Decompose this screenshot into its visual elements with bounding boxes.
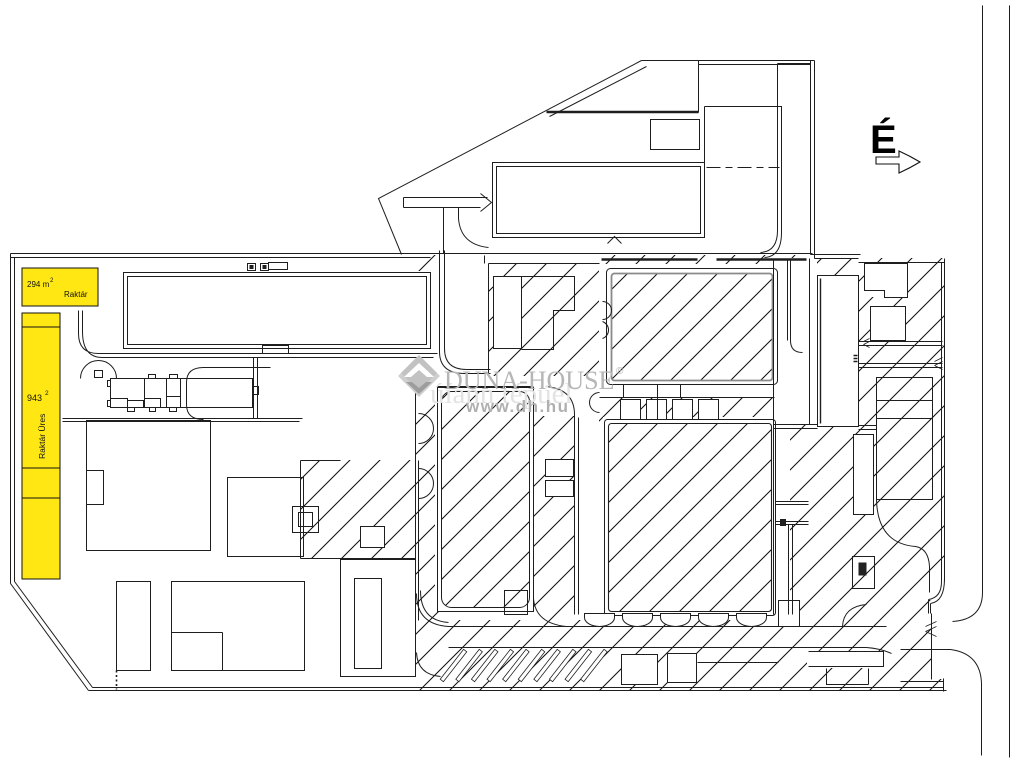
svg-text:Raktár: Raktár bbox=[64, 290, 88, 299]
svg-text:Raktár Üres: Raktár Üres bbox=[37, 414, 47, 459]
svg-text:®: ® bbox=[616, 366, 624, 377]
svg-text:DUNA-HOUSE: DUNA-HOUSE bbox=[444, 366, 614, 395]
svg-text:É: É bbox=[870, 117, 897, 162]
svg-text:294 m: 294 m bbox=[27, 280, 50, 289]
svg-text:www.dh.hu: www.dh.hu bbox=[465, 397, 570, 416]
svg-text:943: 943 bbox=[27, 393, 42, 403]
svg-text:2: 2 bbox=[45, 390, 49, 397]
